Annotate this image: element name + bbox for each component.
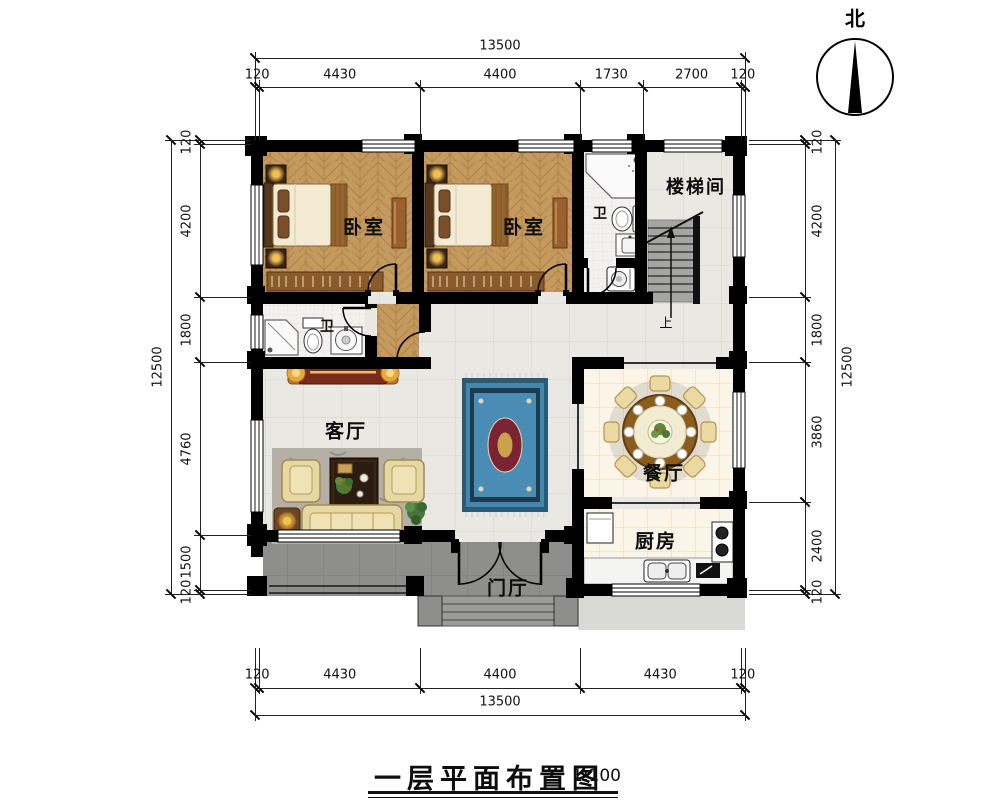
dimension-mark (255, 688, 745, 689)
dimension-mark (745, 52, 746, 140)
dimension-label: 120 (180, 130, 195, 155)
dimension-mark (741, 80, 742, 140)
dimension-label: 12500 (151, 346, 166, 387)
dimension-mark (749, 594, 841, 595)
dimension-label: 4430 (323, 68, 356, 83)
dimension-mark (580, 80, 581, 140)
dimension-label: 1800 (180, 313, 195, 346)
dimension-label: 120 (730, 68, 755, 83)
dimension-label: 12500 (841, 346, 856, 387)
dimension-mark (194, 144, 251, 145)
dimension-mark (259, 80, 260, 140)
dimension-mark (194, 362, 251, 363)
dimension-label: 1500 (180, 546, 195, 579)
dimension-label: 4400 (483, 68, 516, 83)
dimension-mark (580, 648, 581, 694)
dimension-label: 120 (245, 668, 270, 683)
dimension-label: 1730 (595, 68, 628, 83)
title-underline-thick (368, 791, 618, 794)
dimension-mark (255, 58, 745, 59)
dimension-mark (255, 87, 745, 88)
dimension-label: 2400 (811, 530, 826, 563)
dimension-mark (255, 52, 256, 140)
dimension-mark (194, 297, 251, 298)
dimension-mark (749, 144, 811, 145)
dimension-mark (745, 648, 746, 721)
title-underline-thin (368, 797, 618, 798)
dimension-mark (165, 594, 251, 595)
dimension-label: 120 (811, 130, 826, 155)
dimension-label: 120 (180, 579, 195, 604)
dimension-mark (749, 502, 811, 503)
dimension-mark (749, 140, 841, 141)
dimension-mark (420, 648, 421, 694)
dimension-label: 4200 (180, 204, 195, 237)
dimension-mark (194, 535, 251, 536)
dimension-label: 4200 (811, 204, 826, 237)
dimension-label: 4400 (483, 668, 516, 683)
dimension-label: 120 (811, 579, 826, 604)
dimension-label: 120 (245, 68, 270, 83)
dimension-mark (194, 590, 251, 591)
dimension-label: 3860 (811, 416, 826, 449)
dimension-label: 120 (730, 668, 755, 683)
dimension-mark (749, 297, 811, 298)
drawing-scale: 1:100 (572, 766, 621, 786)
dimension-label: 4430 (644, 668, 677, 683)
dimension-mark (165, 140, 251, 141)
floor-plan-canvas: 卧室 卧室 楼梯间 卫 卫 客厅 餐厅 厨房 门厅 上 北 1350012044… (0, 0, 1000, 800)
dimension-label: 4760 (180, 432, 195, 465)
dimension-mark (805, 140, 806, 594)
dimension-mark (749, 362, 811, 363)
dimension-label: 4430 (323, 668, 356, 683)
dimension-chains: 1350012044304400173027001201350012044304… (0, 0, 1000, 800)
dimension-mark (171, 140, 172, 594)
dimension-mark (420, 80, 421, 140)
dimension-label: 13500 (479, 39, 520, 54)
dimension-mark (255, 715, 745, 716)
dimension-label: 2700 (675, 68, 708, 83)
dimension-mark (835, 140, 836, 594)
dimension-label: 1800 (811, 313, 826, 346)
dimension-mark (643, 80, 644, 140)
dimension-mark (200, 140, 201, 594)
dimension-label: 13500 (479, 695, 520, 710)
